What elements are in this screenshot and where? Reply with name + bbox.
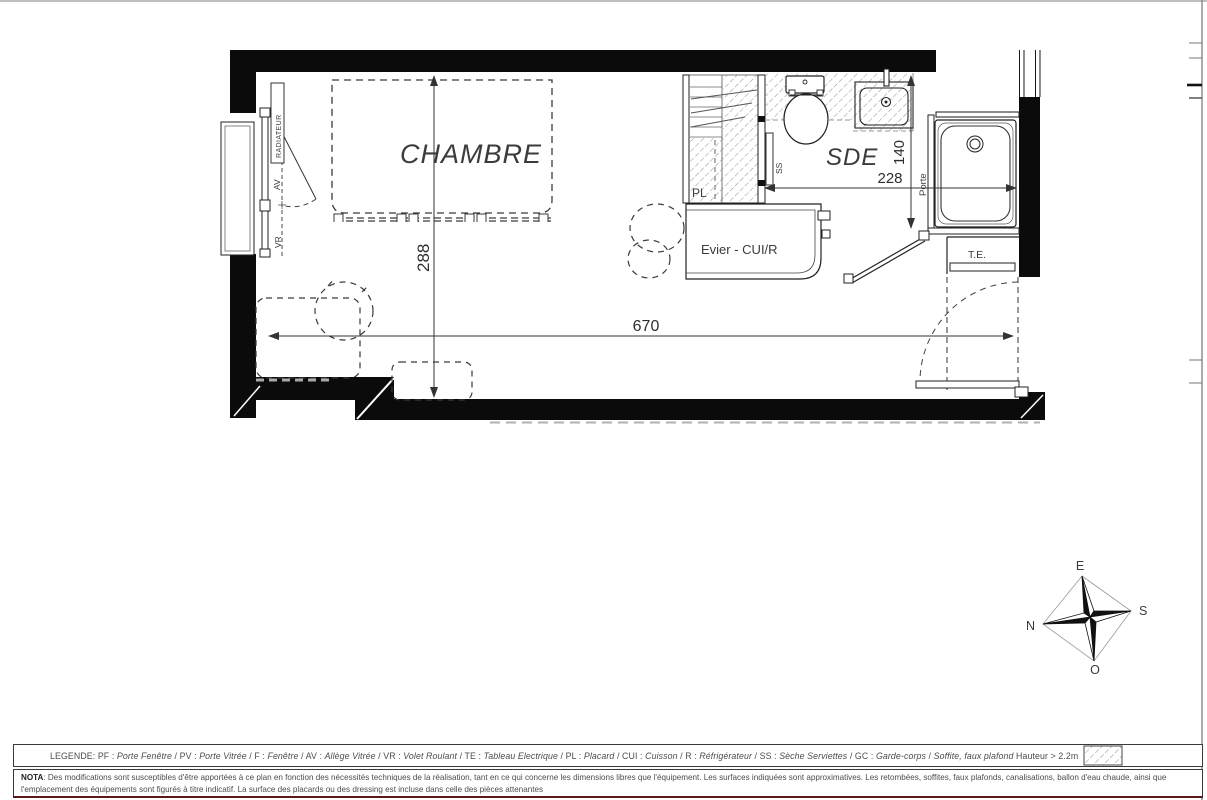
dim-670: 670 [633, 318, 660, 335]
av-label: AV [272, 179, 282, 190]
dim-140: 140 [891, 140, 908, 165]
nota-text: NOTA: Des modifications sont susceptible… [14, 770, 1202, 795]
compass-rose: E S N O [1026, 559, 1147, 677]
nota-label: NOTA [21, 773, 43, 782]
sde-door [844, 231, 929, 283]
towel-radiator [766, 133, 773, 185]
shower [928, 115, 1019, 234]
legend-box: LEGENDE: PF : Porte Fenêtre / PV : Porte… [13, 744, 1203, 767]
party-wall-above [1020, 50, 1041, 97]
dim-228: 228 [877, 170, 902, 187]
dim-288: 288 [414, 244, 433, 272]
compass-north: N [1026, 619, 1035, 633]
radiator: RADIATEUR [271, 83, 284, 163]
te-label: T.E. [968, 249, 986, 261]
compass-east: E [1076, 559, 1084, 573]
kitchen-counter: Evier - CUI/R [686, 204, 830, 279]
sheet-frame-ticks [1187, 43, 1202, 383]
dimension-depth: 288 [414, 75, 438, 398]
evier-label: Evier - CUI/R [701, 242, 778, 257]
vr-label: VR [273, 236, 283, 248]
desk-and-chair [256, 279, 373, 378]
window [221, 108, 316, 257]
legend-line: LEGENDE: PF : Porte Fenêtre / PV : Porte… [14, 751, 1078, 761]
radiator-label: RADIATEUR [276, 114, 283, 158]
soffite-hatch-swatch [1083, 745, 1123, 766]
drawing-sheet: RADIATEUR AV VR [0, 0, 1207, 800]
compass-south: S [1139, 604, 1147, 618]
sde-label: SDE [826, 144, 878, 171]
nota-box: NOTA: Des modifications sont susceptible… [13, 769, 1203, 798]
chambre-label: CHAMBRE [400, 139, 542, 169]
electrical-panel: T.E. [947, 237, 1019, 274]
closet-pl: PL [683, 75, 765, 203]
floor-plan: RADIATEUR AV VR [0, 0, 1207, 800]
dimension-width: 670 [268, 318, 1014, 340]
toilet [784, 76, 828, 144]
porte-label: Porte [918, 173, 929, 196]
kitchen-chairs [628, 204, 684, 278]
compass-west: O [1090, 663, 1100, 677]
nota-body: : Des modifications sont susceptibles d'… [21, 773, 1166, 794]
sde-top-partition [936, 112, 1019, 117]
pl-label: PL [692, 186, 707, 200]
ss-label: SS [774, 162, 784, 174]
low-cabinet [392, 362, 472, 400]
